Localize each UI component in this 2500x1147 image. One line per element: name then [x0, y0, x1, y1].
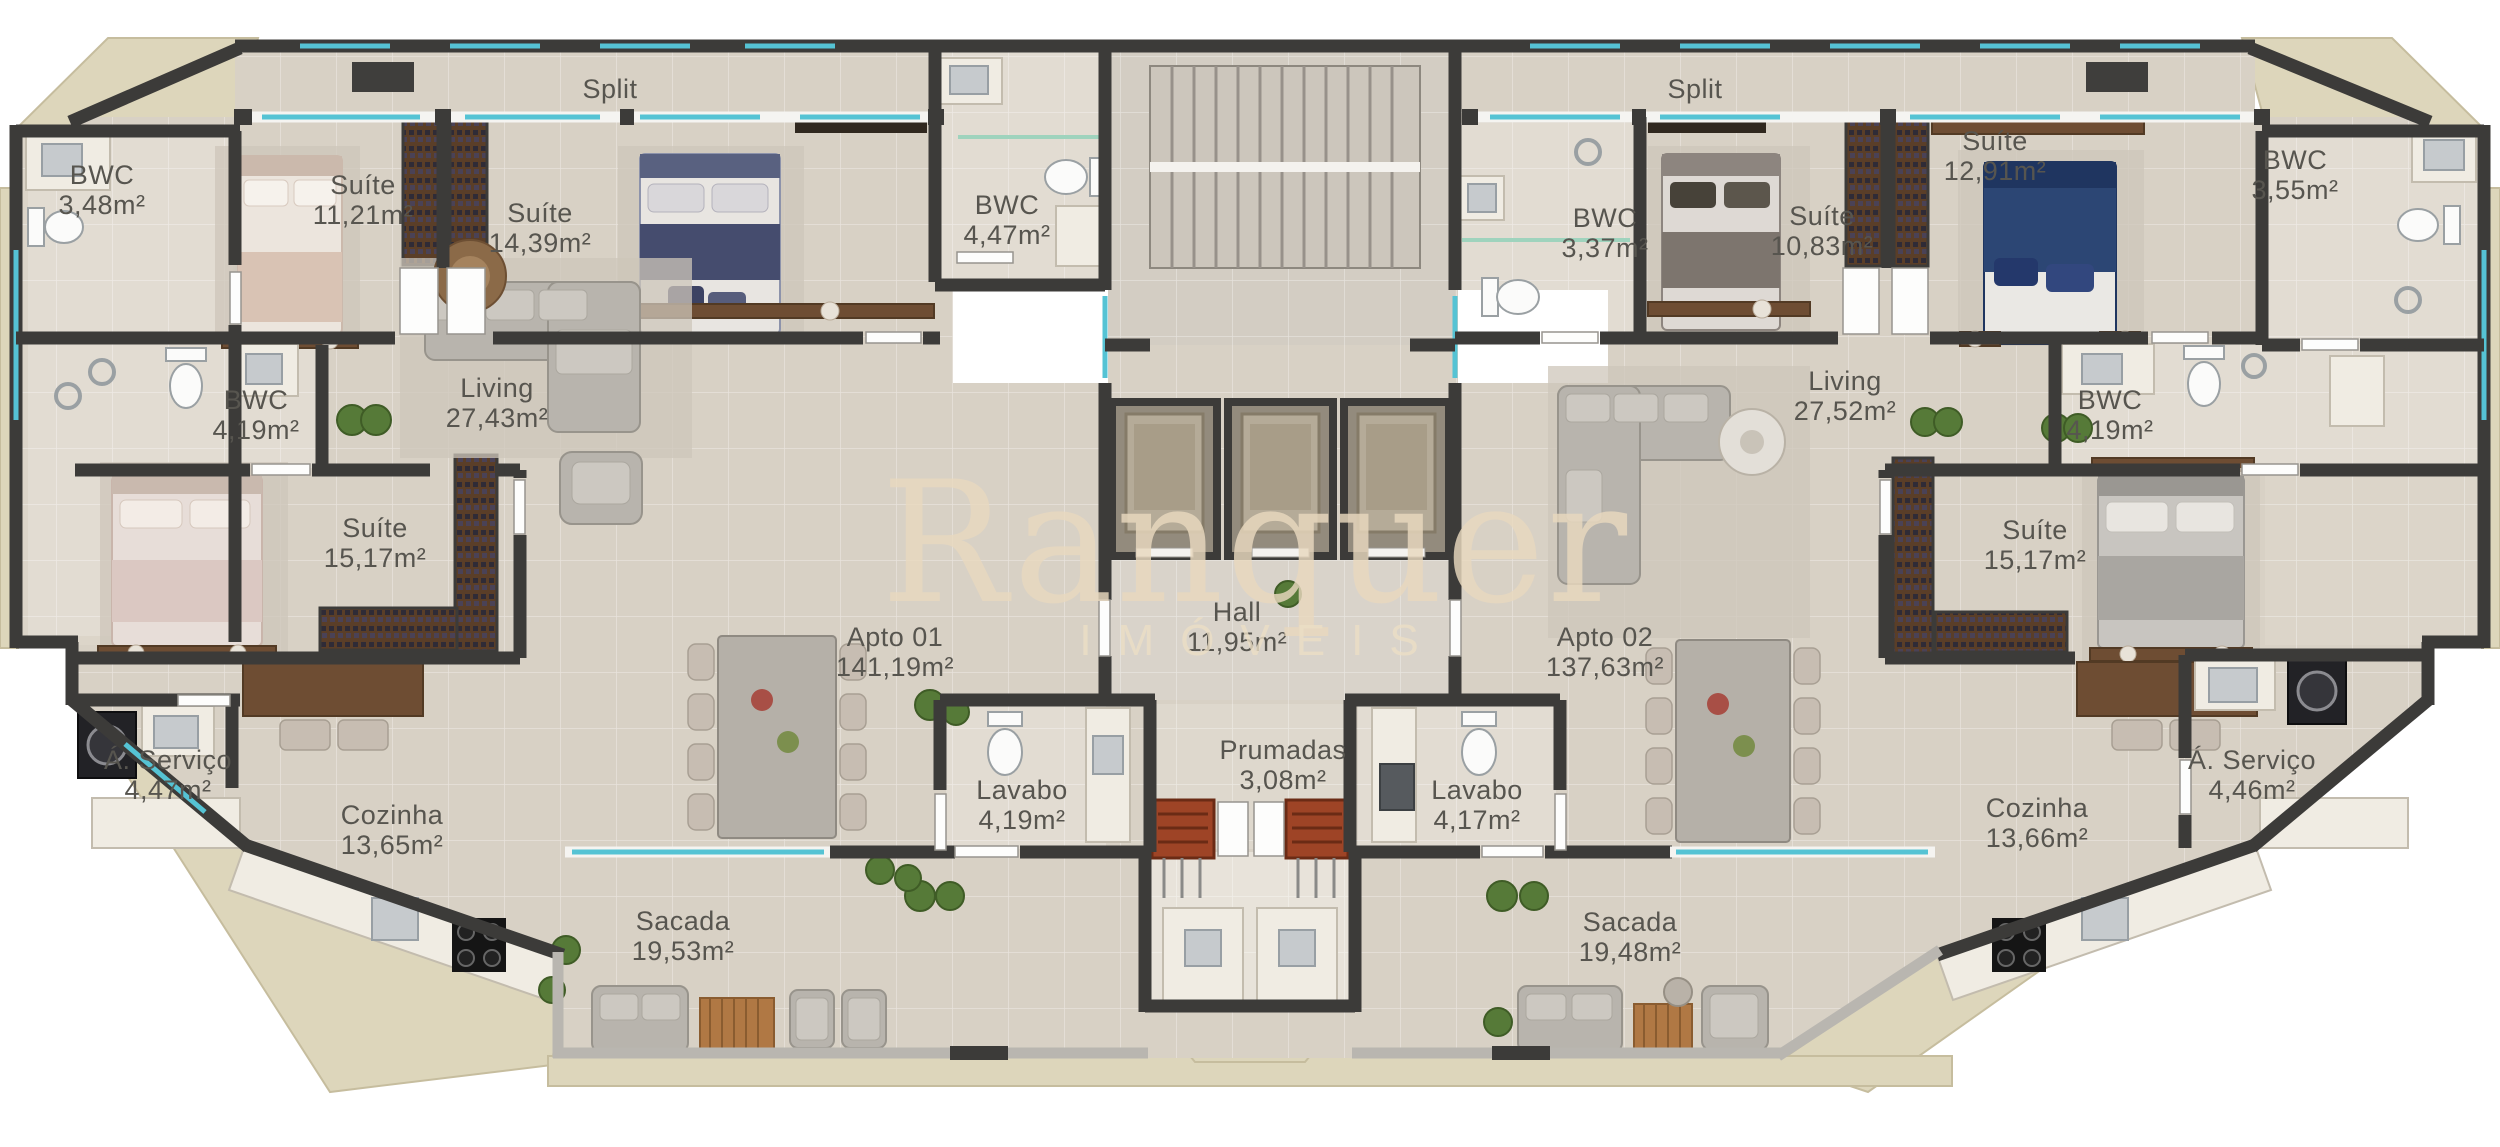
shaft-door	[1218, 802, 1248, 856]
label-servico1: Á. Serviço4,47m²	[104, 745, 232, 805]
label-bwc447: BWC4,47m²	[963, 190, 1050, 250]
bed-suite-1517-left	[98, 462, 288, 662]
label-suite1291: Suíte12,91m²	[1944, 126, 2047, 186]
label-split-right: Split	[1667, 74, 1722, 104]
label-sacada1: Sacada19,53m²	[632, 906, 735, 966]
bed-suite-1517-right	[2082, 458, 2260, 664]
split-condenser-icon	[352, 62, 414, 92]
label-lavabo1: Lavabo4,19m²	[976, 775, 1068, 835]
watermark-subtitle: IMÓVEIS	[1079, 616, 1444, 666]
deck-table-icon	[700, 998, 774, 1050]
label-cozinha1: Cozinha13,65m²	[341, 800, 444, 860]
watermark-brand: Ranquer	[881, 445, 1629, 641]
split-condenser-icon	[2086, 62, 2148, 92]
deck-table-icon	[1634, 1004, 1692, 1050]
label-bwc337: BWC3,37m²	[1561, 203, 1648, 263]
label-sacada2: Sacada19,48m²	[1579, 907, 1682, 967]
staircase-icon	[1150, 66, 1420, 268]
label-suite1439: Suíte14,39m²	[489, 198, 592, 258]
label-lavabo2: Lavabo4,17m²	[1431, 775, 1523, 835]
label-living2: Living27,52m²	[1794, 366, 1897, 426]
label-split-left: Split	[582, 74, 637, 104]
shaft-door	[1254, 802, 1284, 856]
label-suite1121: Suíte11,21m²	[313, 170, 414, 230]
label-living1: Living27,43m²	[446, 373, 549, 433]
label-bwc348: BWC3,48m²	[58, 160, 145, 220]
label-servico2: Á. Serviço4,46m²	[2188, 745, 2316, 805]
label-bwc419-right: BWC4,19m²	[2066, 385, 2153, 445]
label-prumadas: Prumadas3,08m²	[1219, 735, 1346, 795]
label-bwc419-left: BWC4,19m²	[212, 385, 299, 445]
label-cozinha2: Cozinha13,66m²	[1986, 793, 2089, 853]
label-suite1083: Suíte10,83m²	[1771, 201, 1874, 261]
label-suite1517-left: Suíte15,17m²	[324, 513, 427, 573]
floor-plan: Split Split BWC3,48m² Suíte11,21m² Suíte…	[0, 0, 2500, 1147]
label-bwc355: BWC3,55m²	[2251, 145, 2338, 205]
label-suite1517-right: Suíte15,17m²	[1984, 515, 2087, 575]
